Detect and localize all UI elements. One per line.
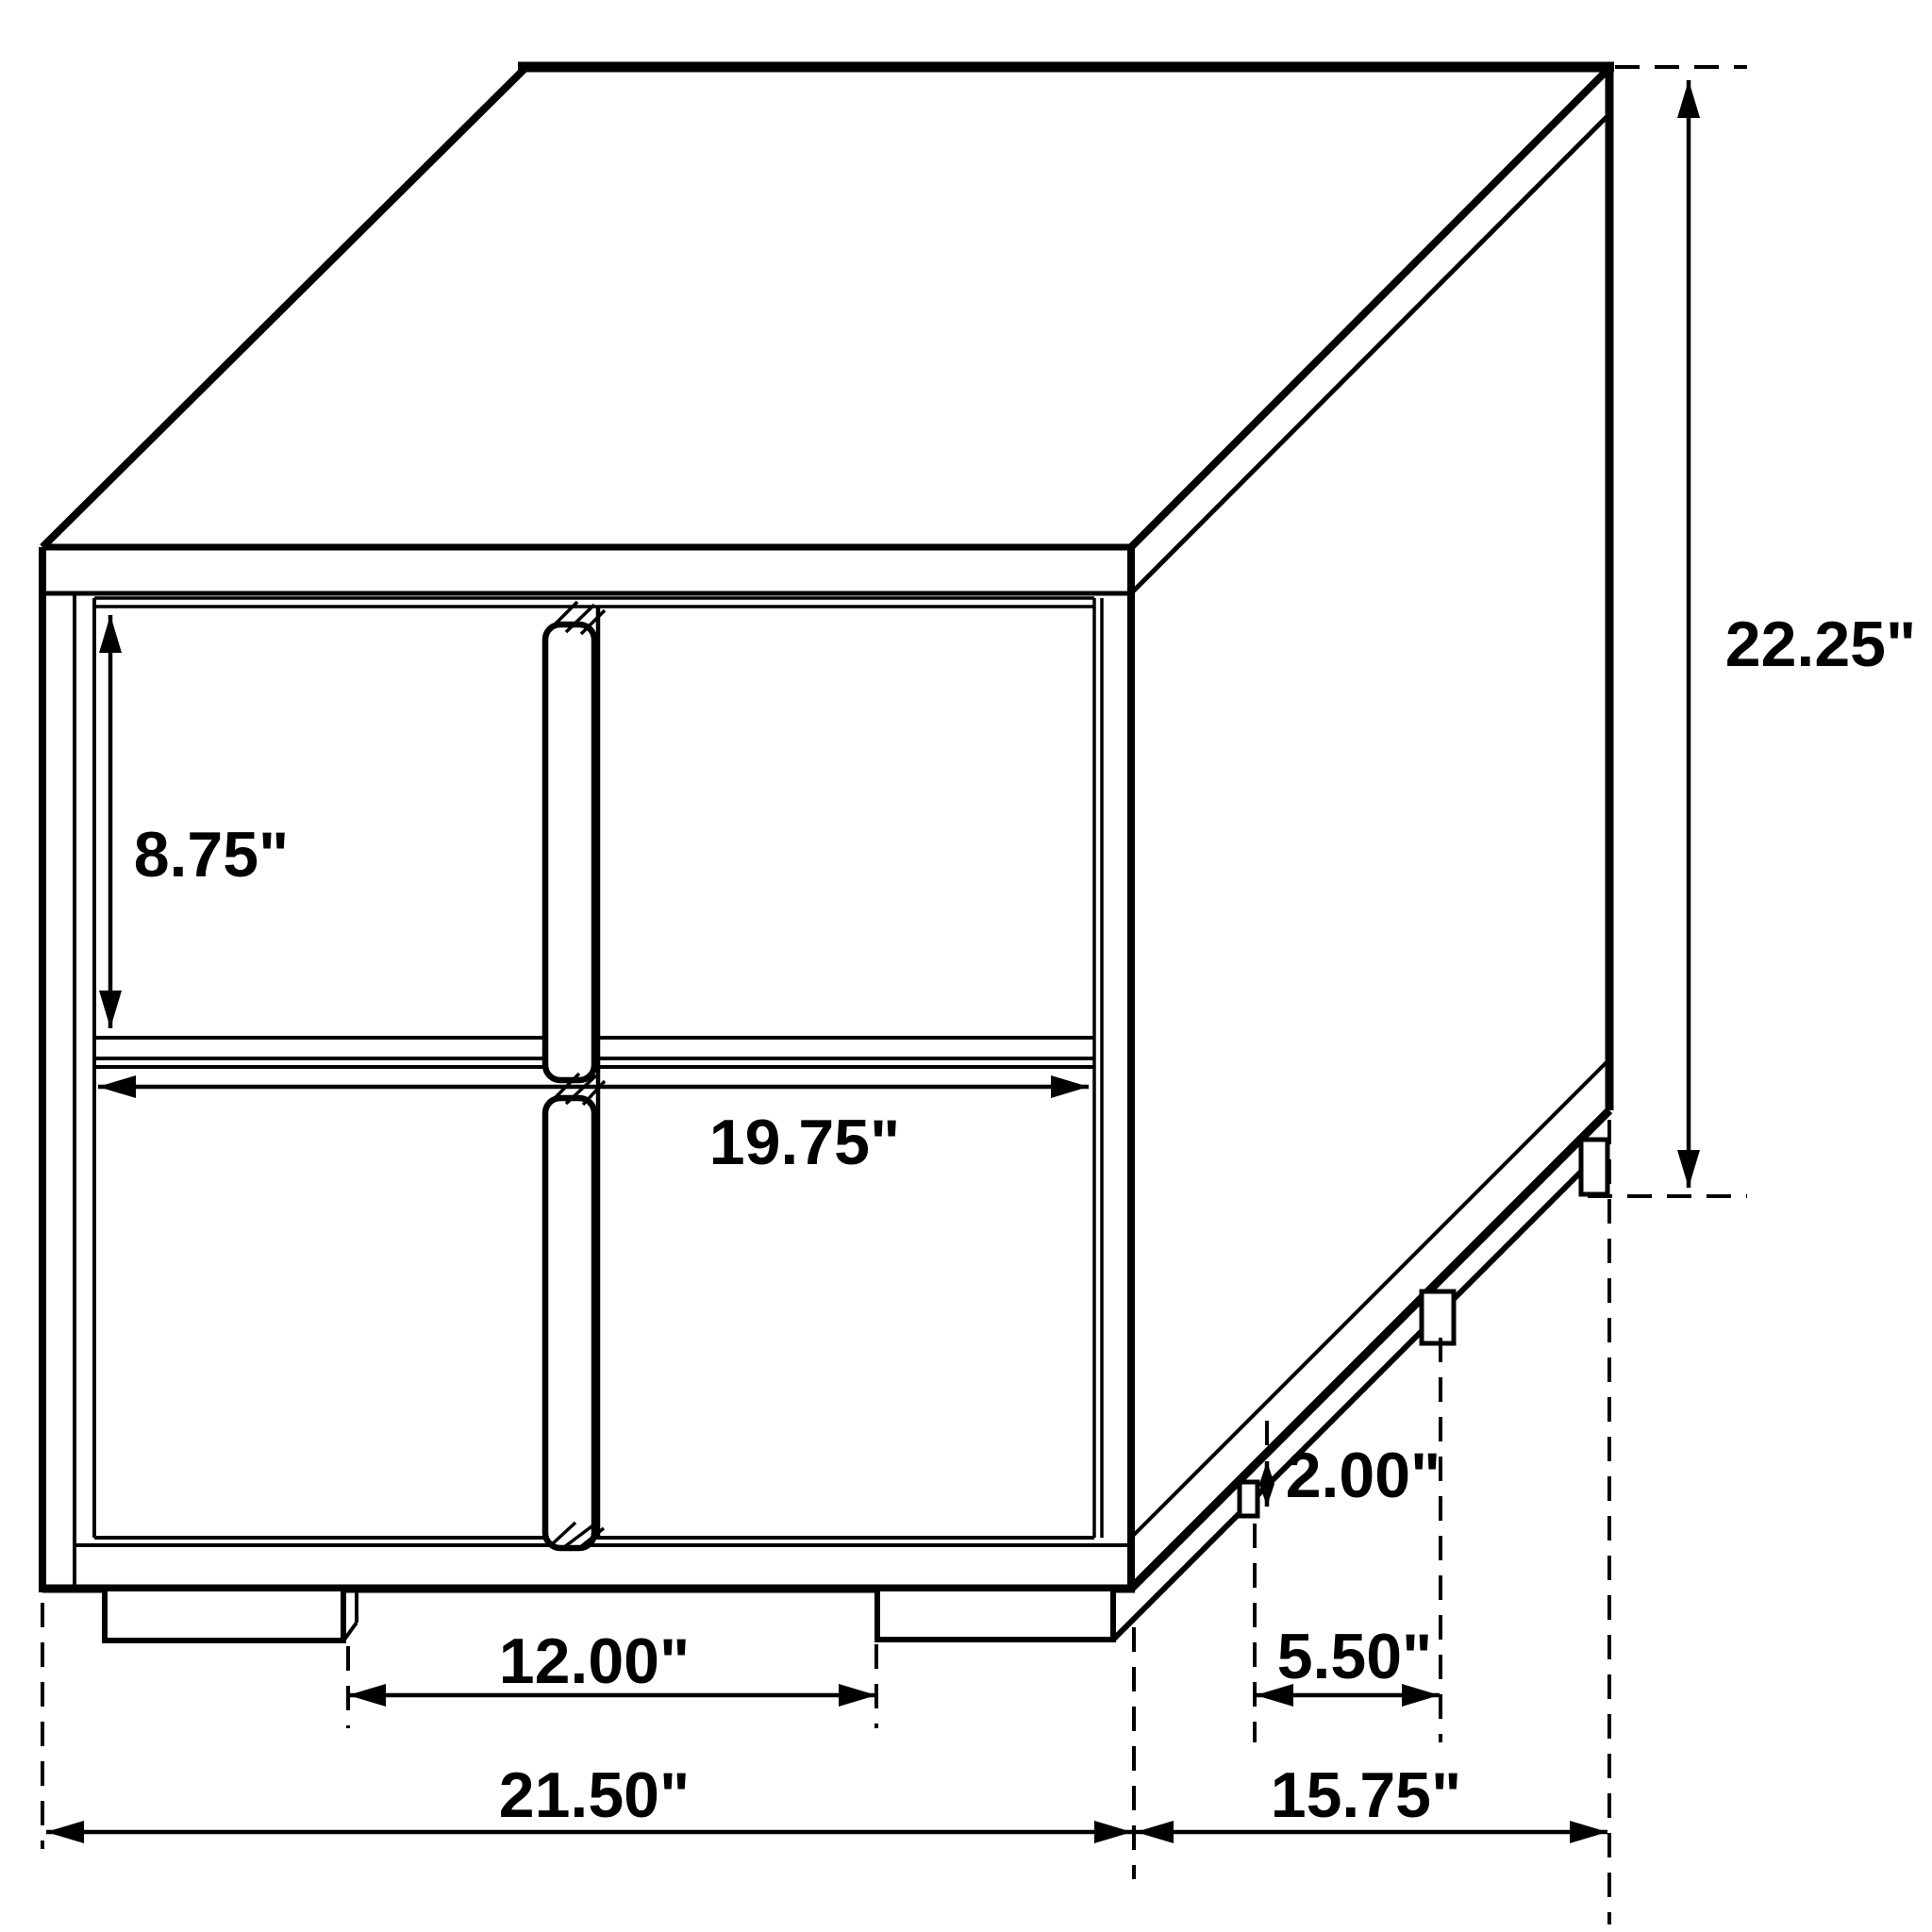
top-right-slant-upper: [1131, 68, 1609, 547]
nightstand-dimension-diagram: 8.75" 19.75" 22.25" 12.00" 21.50": [0, 0, 1932, 1932]
bottom-drawer-handle: [545, 1098, 594, 1548]
side-plinth-bottom-diagonal: [1113, 1146, 1607, 1640]
top-left-slant-edge: [42, 69, 525, 547]
top-drawer-handle: [545, 625, 594, 1080]
dim-label-side-leg-spacing: 5.50": [1277, 1621, 1433, 1692]
dim-front-leg-spacing: 12.00": [348, 1625, 876, 1728]
dim-side-leg-spacing: 5.50": [1255, 1338, 1441, 1742]
legs: [105, 1140, 1607, 1641]
dim-leg-height: 2.00": [1267, 1421, 1441, 1511]
dim-label-overall-depth: 15.75": [1271, 1759, 1461, 1831]
dim-label-front-leg-spacing: 12.00": [499, 1625, 690, 1697]
dim-overall-height: 22.25": [1588, 67, 1916, 1196]
dimension-annotations: 8.75" 19.75" 22.25" 12.00" 21.50": [42, 67, 1916, 1924]
side-panel: [1113, 67, 1609, 1640]
dim-label-leg-height: 2.00": [1286, 1440, 1441, 1511]
dim-label-overall-height: 22.25": [1725, 608, 1916, 680]
dim-label-overall-width: 21.50": [499, 1759, 690, 1831]
dim-drawer-front-height: 8.75": [110, 615, 289, 1028]
top-right-slant-lower: [1131, 114, 1609, 593]
side-front-leg: [1240, 1482, 1257, 1516]
front-right-leg: [877, 1589, 1113, 1640]
dim-label-drawer-front-height: 8.75": [134, 819, 290, 891]
side-middle-leg: [1422, 1291, 1454, 1343]
dim-label-front-inner-width: 19.75": [709, 1107, 900, 1178]
top-panel: [42, 67, 1614, 593]
front-left-leg: [105, 1589, 343, 1641]
side-bottom-edge: [1131, 1110, 1609, 1589]
dim-overall-depth: 15.75": [1136, 1120, 1609, 1924]
side-back-leg: [1581, 1140, 1607, 1194]
